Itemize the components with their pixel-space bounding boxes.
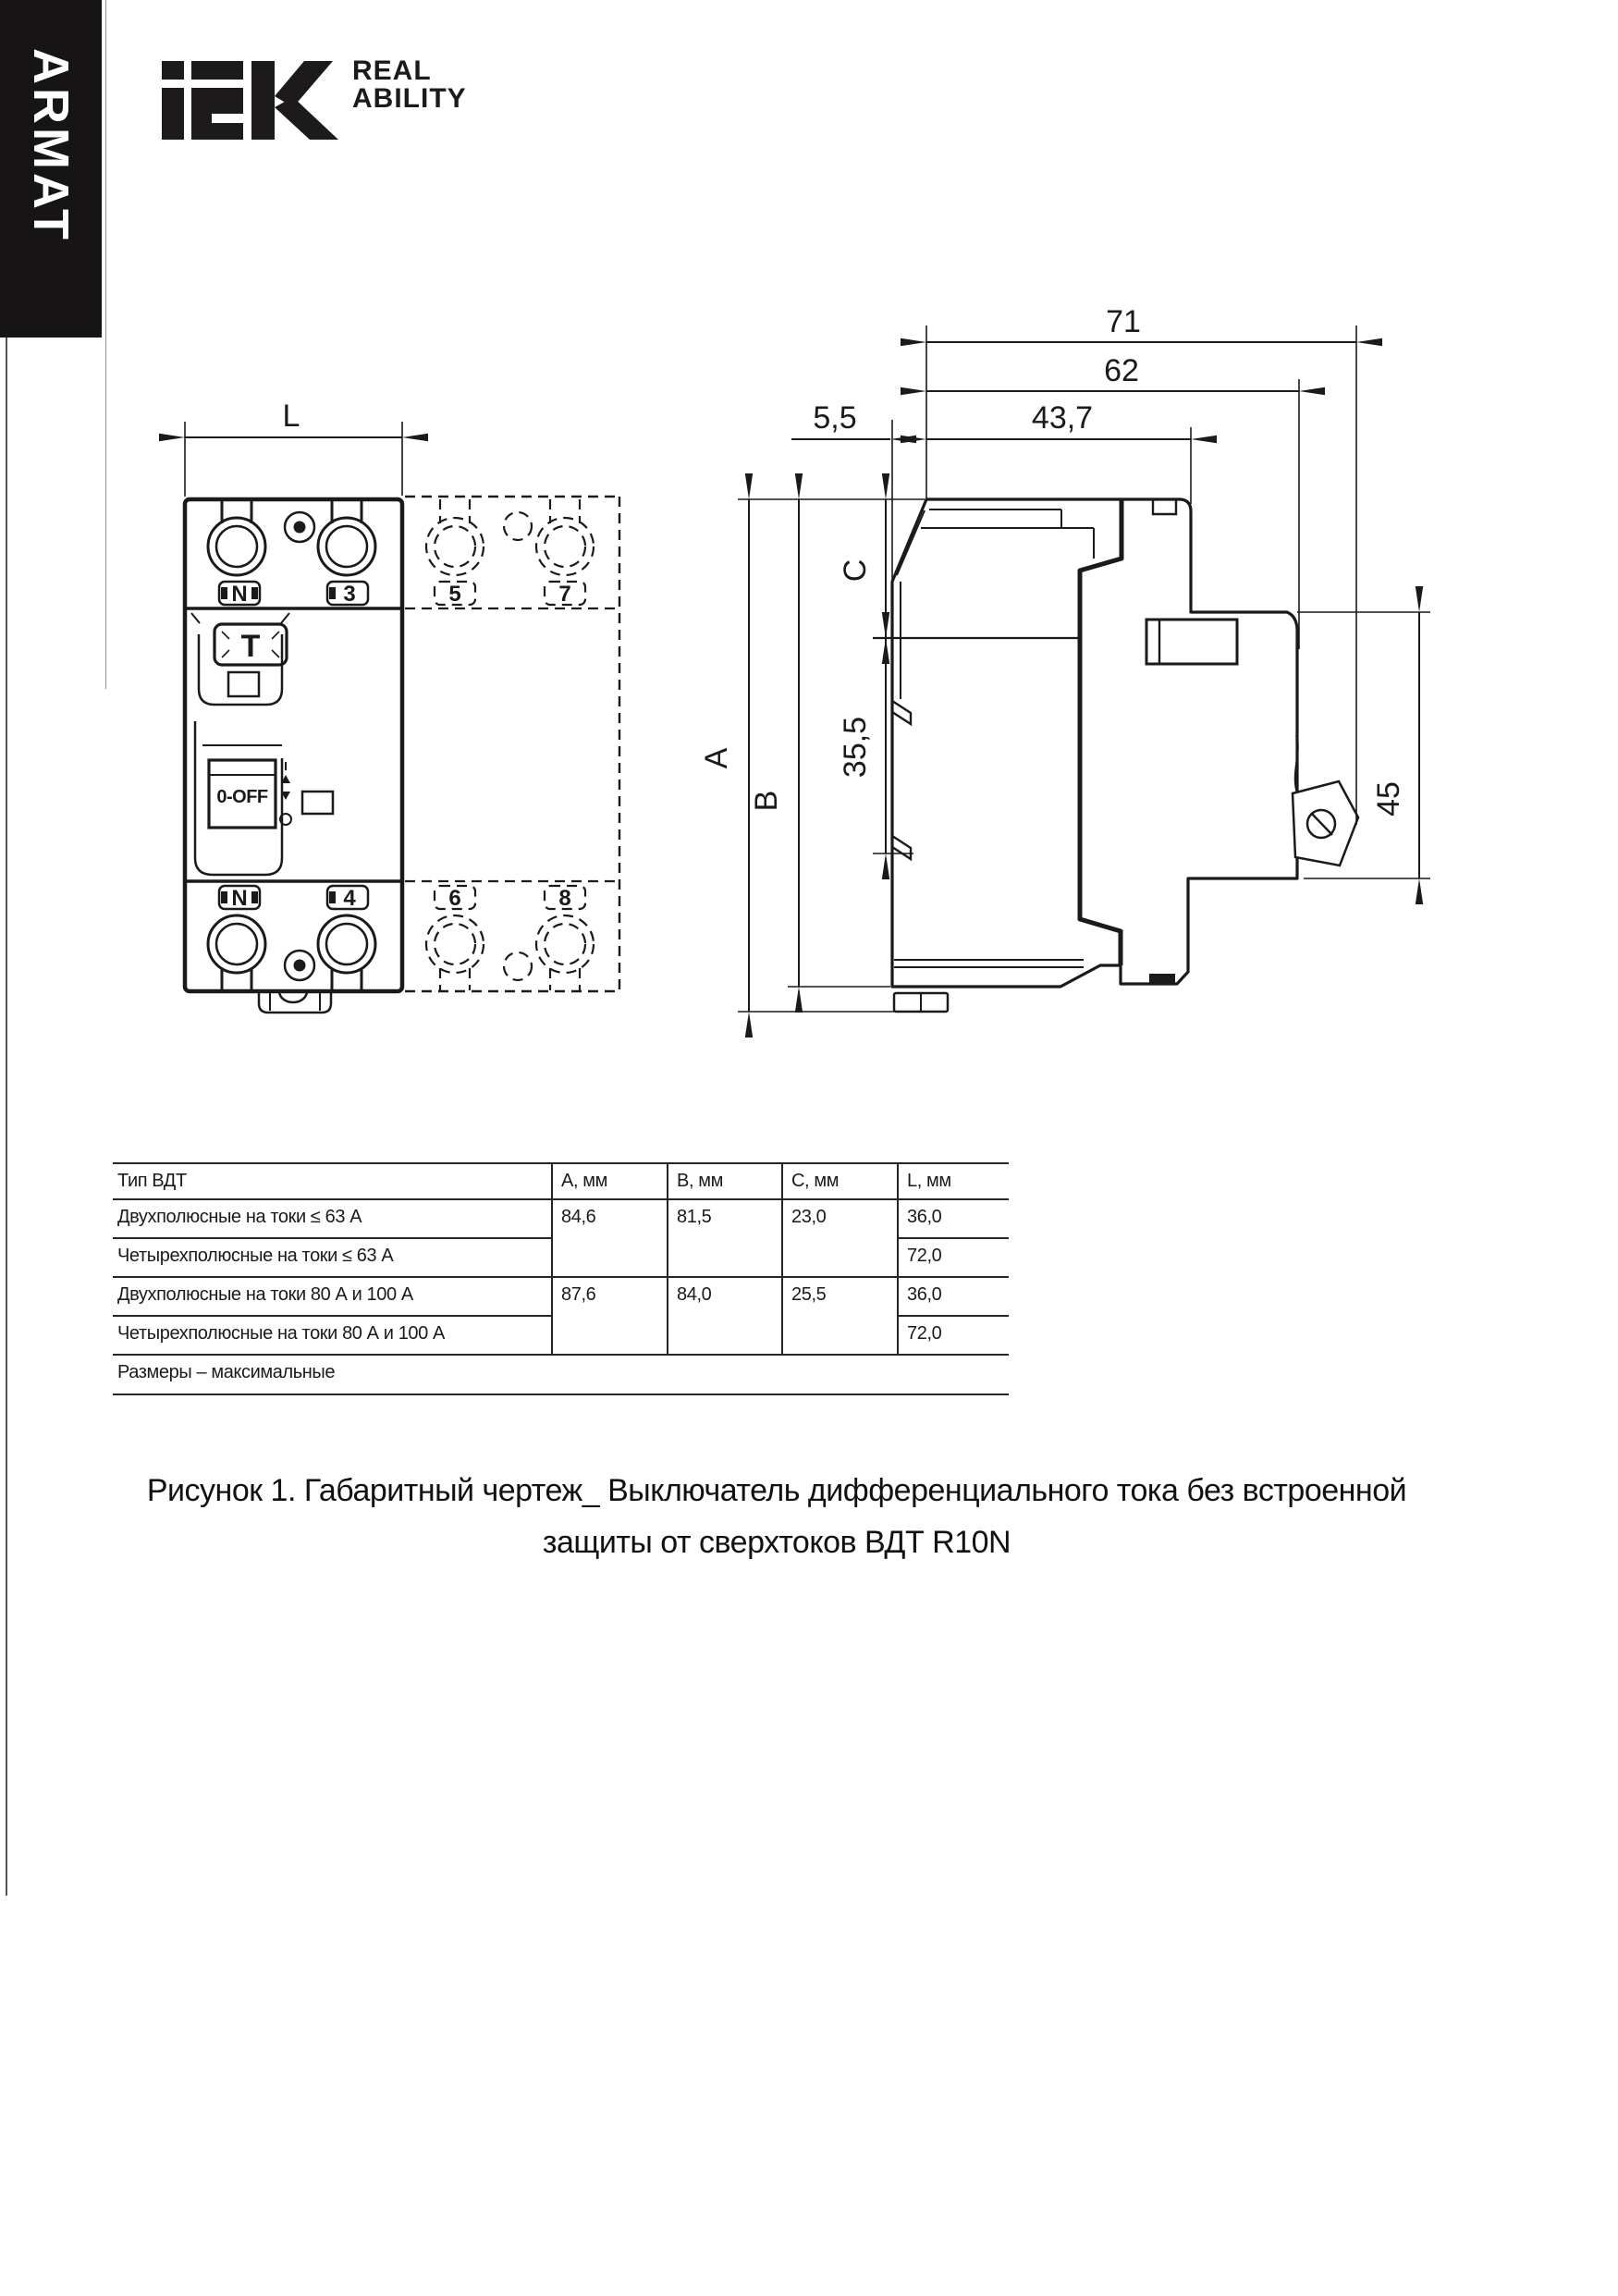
mounting-screw-top-icon xyxy=(285,512,314,542)
terminal-top-left xyxy=(208,501,265,575)
figure-caption-line2: защиты от сверхтоков ВДТ R10N xyxy=(37,1516,1516,1568)
label-7: 7 xyxy=(558,582,570,607)
col-header-c: С, мм xyxy=(782,1163,898,1199)
indicator-window xyxy=(228,672,259,696)
terminal-label-4: 4 xyxy=(327,886,368,911)
terminal-screw-clamp-icon xyxy=(1293,735,1358,866)
label-6: 6 xyxy=(448,886,460,911)
din-clip-tab xyxy=(259,991,331,1013)
col-header-a: А, мм xyxy=(552,1163,668,1199)
terminal-label-3: 3 xyxy=(327,582,368,607)
dim-A: A xyxy=(699,499,749,1012)
terminal-top-right xyxy=(318,501,375,575)
dim-label-71: 71 xyxy=(1106,304,1141,339)
cell-l: 72,0 xyxy=(898,1238,1009,1277)
terminal-label-N-top: N xyxy=(219,582,260,607)
switch-label: 0-OFF xyxy=(216,787,268,807)
dim-35-5: 35,5 xyxy=(838,638,886,853)
table-header-row: Тип ВДТ А, мм В, мм С, мм L, мм xyxy=(113,1163,1009,1199)
terminal-label-N-bottom: N xyxy=(219,886,260,911)
dim-L: L xyxy=(185,399,402,497)
figure-caption: Рисунок 1. Габаритный чертеж_ Выключател… xyxy=(37,1465,1516,1568)
dim-B: B xyxy=(749,499,799,987)
logo-tagline-line2: ABILITY xyxy=(352,83,467,115)
terminal-bottom-right xyxy=(318,915,375,989)
dim-C: C xyxy=(838,499,886,638)
cell-a: 84,6 xyxy=(552,1199,668,1277)
dim-5-5: 5,5 xyxy=(791,400,890,439)
dim-label-43-7: 43,7 xyxy=(1032,400,1093,436)
label-4: 4 xyxy=(343,886,356,911)
dim-label-35-5: 35,5 xyxy=(838,717,873,778)
dim-label-A: A xyxy=(699,747,734,768)
side-view: 71 62 43,7 5,5 A B xyxy=(699,304,1430,1012)
cell-a: 87,6 xyxy=(552,1277,668,1355)
cell-type: Двухполюсные на токи ≤ 63 А xyxy=(113,1199,552,1238)
dim-label-L: L xyxy=(283,399,300,434)
label-n-top: N xyxy=(231,582,247,607)
toggle-switch: 0-OFF xyxy=(195,721,333,875)
dimensions-table: Тип ВДТ А, мм В, мм С, мм L, мм Двухполю… xyxy=(113,1162,1009,1395)
col-header-l: L, мм xyxy=(898,1163,1009,1199)
table-row: Двухполюсные на токи ≤ 63 А 84,6 81,5 23… xyxy=(113,1199,1009,1238)
cell-l: 72,0 xyxy=(898,1316,1009,1355)
test-button-label: T xyxy=(241,629,261,664)
dim-43-7: 43,7 xyxy=(926,400,1191,439)
dim-label-B: B xyxy=(749,791,784,812)
cell-l: 36,0 xyxy=(898,1277,1009,1316)
logo-tagline-line1: REAL xyxy=(352,55,432,87)
banner-text: ARMAT xyxy=(22,48,80,243)
side-profile-outline xyxy=(892,499,1297,987)
datasheet-page: ARMAT REAL ABILITY xyxy=(0,0,1618,2296)
dim-label-C: C xyxy=(838,559,873,583)
dim-label-62: 62 xyxy=(1104,353,1139,388)
cell-b: 81,5 xyxy=(668,1199,782,1277)
cell-c: 23,0 xyxy=(782,1199,898,1277)
cell-type: Двухполюсные на токи 80 А и 100 А xyxy=(113,1277,552,1316)
label-n-bottom: N xyxy=(231,886,247,911)
terminal-bottom-left xyxy=(208,915,265,989)
label-5: 5 xyxy=(448,582,460,607)
table-footnote: Размеры – максимальные xyxy=(113,1355,1009,1394)
rear-terminal-block xyxy=(1146,620,1237,664)
mounting-screw-bottom-icon xyxy=(285,951,314,980)
front-view-4pole-dashed: 5 7 6 8 xyxy=(405,497,619,991)
test-button: T xyxy=(191,613,289,705)
cell-type: Четырехполюсные на токи ≤ 63 А xyxy=(113,1238,552,1277)
table-footnote-row: Размеры – максимальные xyxy=(113,1355,1009,1394)
cell-b: 84,0 xyxy=(668,1277,782,1355)
col-header-type: Тип ВДТ xyxy=(113,1163,552,1199)
cell-type: Четырехполюсные на токи 80 А и 100 А xyxy=(113,1316,552,1355)
cell-l: 36,0 xyxy=(898,1199,1009,1238)
cell-c: 25,5 xyxy=(782,1277,898,1355)
dim-45: 45 xyxy=(1371,612,1419,878)
iek-logo-glyphs xyxy=(162,61,338,140)
dim-label-5-5: 5,5 xyxy=(813,400,856,436)
label-8: 8 xyxy=(558,886,570,911)
din-rail-lip xyxy=(1149,974,1175,985)
table-row: Двухполюсные на токи 80 А и 100 А 87,6 8… xyxy=(113,1277,1009,1316)
col-header-b: В, мм xyxy=(668,1163,782,1199)
front-view: N 3 T 0-OFF xyxy=(185,399,402,1013)
dim-71: 71 xyxy=(926,304,1356,342)
label-3: 3 xyxy=(343,582,355,607)
padlock-slot xyxy=(302,792,333,814)
din-clip-side xyxy=(894,993,948,1012)
dimensional-drawing: N 3 T 0-OFF xyxy=(0,259,1618,1073)
dim-label-45: 45 xyxy=(1371,781,1406,816)
figure-caption-line1: Рисунок 1. Габаритный чертеж_ Выключател… xyxy=(37,1465,1516,1516)
dim-62: 62 xyxy=(926,353,1299,391)
